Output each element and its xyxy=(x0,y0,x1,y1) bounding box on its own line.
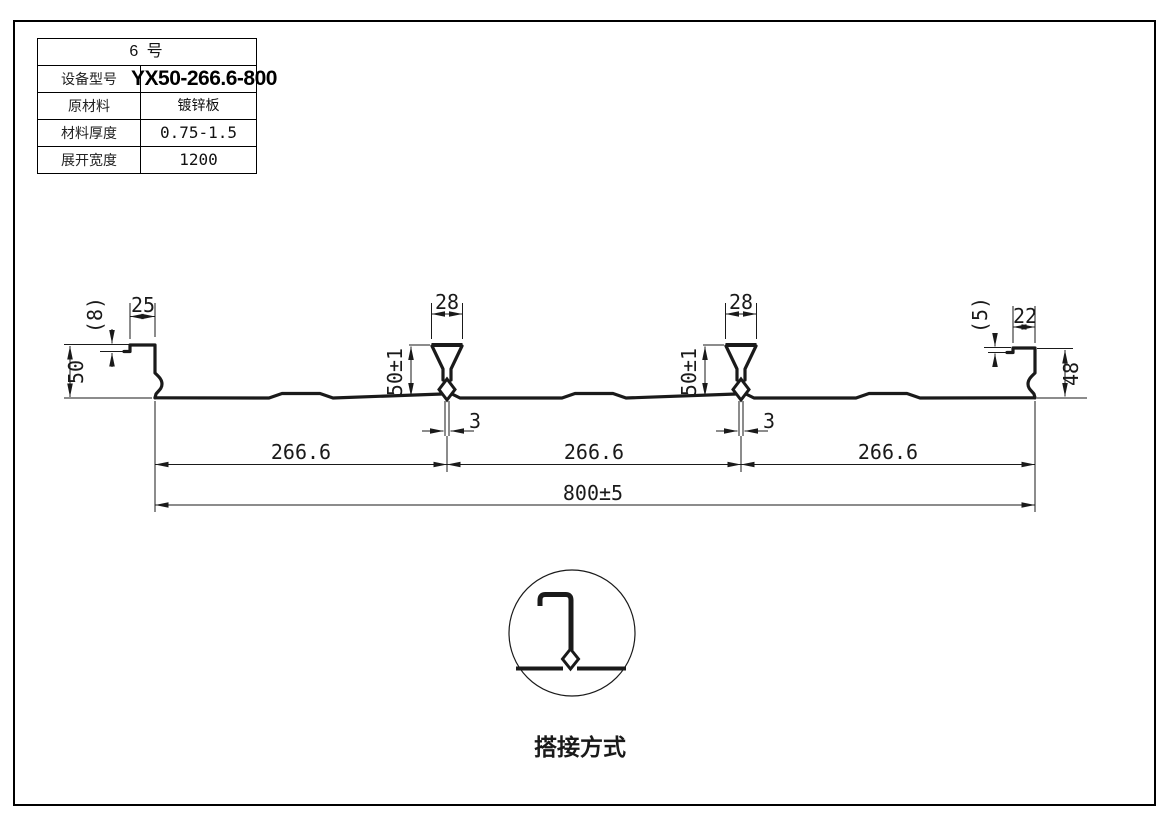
flange-span-3 xyxy=(746,394,1035,399)
spec-label-material: 原材料 xyxy=(38,93,141,119)
overlap-hook xyxy=(540,595,571,651)
rib-2: 28 50±1 3 xyxy=(677,290,775,472)
rib-funnel-left xyxy=(432,346,443,380)
rib-stem-lines xyxy=(739,401,743,436)
spec-label-thickness: 材料厚度 xyxy=(38,120,141,146)
rib-stem-lines xyxy=(445,401,449,436)
model-number: YX50-266.6-800 xyxy=(131,66,277,91)
spec-row-material: 原材料 镀锌板 xyxy=(38,92,256,119)
dim-pitch-2: 266.6 xyxy=(564,440,624,464)
dim-pitch-1: 266.6 xyxy=(271,440,331,464)
spec-value-model-cell: YX50-266.6-800 xyxy=(141,66,256,92)
dim-rib-height: 50±1 xyxy=(677,348,701,396)
left-edge-profile xyxy=(124,345,162,398)
dim-right-height: 48 xyxy=(1059,362,1083,386)
rib-lock-diamond xyxy=(439,379,455,400)
dim-right-lip: 22 xyxy=(1013,304,1037,328)
detail-caption: 搭接方式 xyxy=(534,734,626,761)
spec-value-width: 1200 xyxy=(141,147,256,173)
dim-right-edge-step: (5) xyxy=(968,297,992,333)
spec-row-thickness: 材料厚度 0.75-1.5 xyxy=(38,119,256,146)
dim-rib-width: 28 xyxy=(729,290,753,314)
spec-value-thickness: 0.75-1.5 xyxy=(141,120,256,146)
dim-left-edge-step: (8) xyxy=(83,297,107,333)
rib-1: 28 50±1 3 xyxy=(383,290,481,472)
drawing-sheet: 28 50±1 3 28 50±1 3 xyxy=(0,0,1169,827)
spec-table: 6 号 设备型号 YX50-266.6-800 原材料 镀锌板 材料厚度 0.7… xyxy=(37,38,257,174)
spec-label-width: 展开宽度 xyxy=(38,147,141,173)
right-edge-profile xyxy=(1007,348,1035,398)
panel-profile-outline xyxy=(124,345,1035,398)
spec-table-title: 6 号 xyxy=(38,39,256,65)
rib-lock-diamond xyxy=(733,379,749,400)
rib-funnel-left xyxy=(726,346,737,380)
dim-left-lip: 25 xyxy=(131,293,155,317)
rib-funnel-right xyxy=(451,346,462,380)
dim-rib-height: 50±1 xyxy=(383,348,407,396)
dim-overall-width: 800±5 xyxy=(563,481,623,505)
dim-left-height: 50 xyxy=(64,360,88,384)
lap-joint-detail: 搭接方式 xyxy=(509,570,635,761)
spec-label-model: 设备型号 xyxy=(38,66,141,92)
spec-value-material: 镀锌板 xyxy=(141,93,256,119)
dim-pitch-3: 266.6 xyxy=(858,440,918,464)
dim-rib-width: 28 xyxy=(435,290,459,314)
detail-lock-diamond xyxy=(563,649,579,669)
spec-row-width: 展开宽度 1200 xyxy=(38,146,256,173)
spec-row-model: 设备型号 YX50-266.6-800 xyxy=(38,65,256,92)
dim-rib-gap: 3 xyxy=(469,409,481,433)
spec-title-row: 6 号 xyxy=(38,39,256,65)
dim-rib-gap: 3 xyxy=(763,409,775,433)
width-dimensions: 266.6 266.6 266.6 800±5 xyxy=(155,401,1035,512)
rib-funnel-right xyxy=(745,346,756,380)
